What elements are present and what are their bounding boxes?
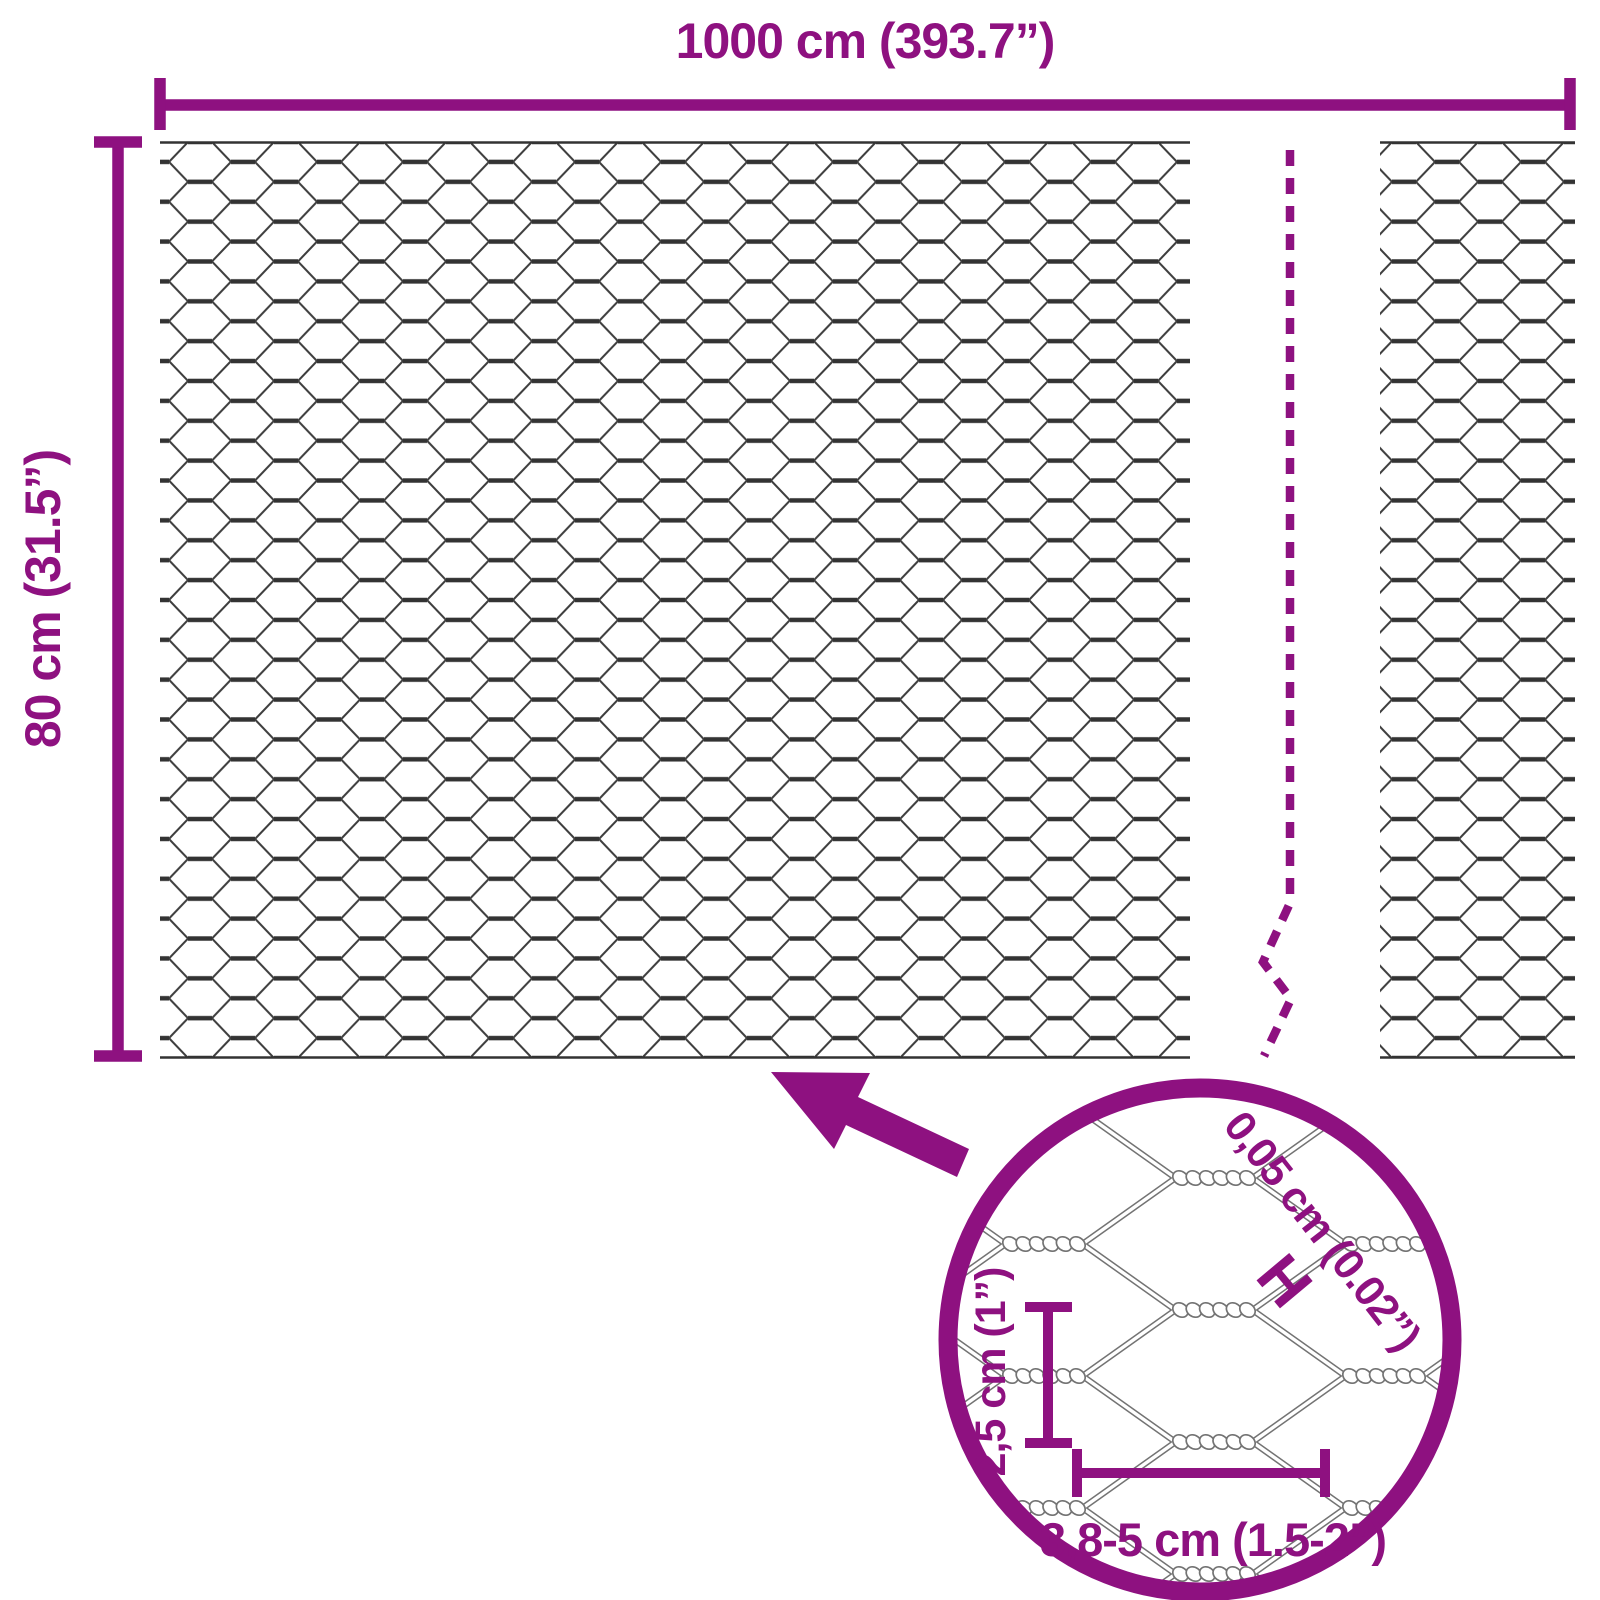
main-mesh-panel bbox=[160, 142, 1190, 1058]
length-dimension-line bbox=[160, 78, 1570, 130]
height-dimension-line bbox=[94, 142, 142, 1056]
diagram-canvas: 1000 cm (393.7”) 80 cm (31.5”) bbox=[0, 0, 1600, 1600]
height-dimension-label: 80 cm (31.5”) bbox=[15, 450, 71, 748]
length-dimension-label: 1000 cm (393.7”) bbox=[676, 13, 1055, 69]
mesh-height-label: 2,5 cm (1”) bbox=[967, 1268, 1015, 1477]
product-dimension-diagram: 1000 cm (393.7”) 80 cm (31.5”) bbox=[0, 0, 1600, 1600]
break-line-icon bbox=[1263, 150, 1291, 1056]
mesh-width-label: 3,8-5 cm (1.5-2”) bbox=[1040, 1513, 1386, 1566]
zoom-arrow-icon bbox=[771, 1072, 969, 1177]
right-mesh-strip bbox=[1380, 142, 1575, 1058]
